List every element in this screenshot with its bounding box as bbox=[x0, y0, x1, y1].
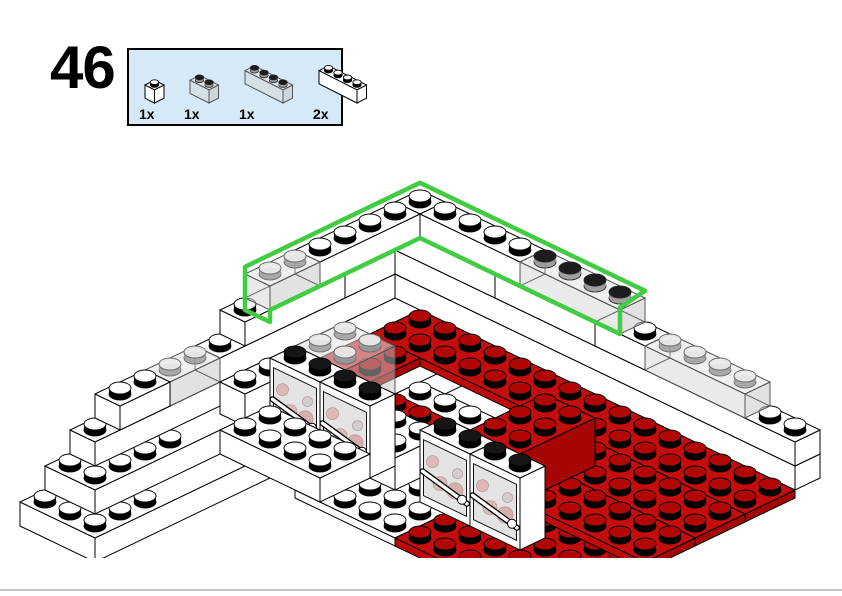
instruction-page: { "page": { "step_number": "46", "backgr… bbox=[0, 0, 842, 596]
page-divider bbox=[0, 589, 842, 591]
lego-isometric-illustration bbox=[0, 0, 842, 558]
